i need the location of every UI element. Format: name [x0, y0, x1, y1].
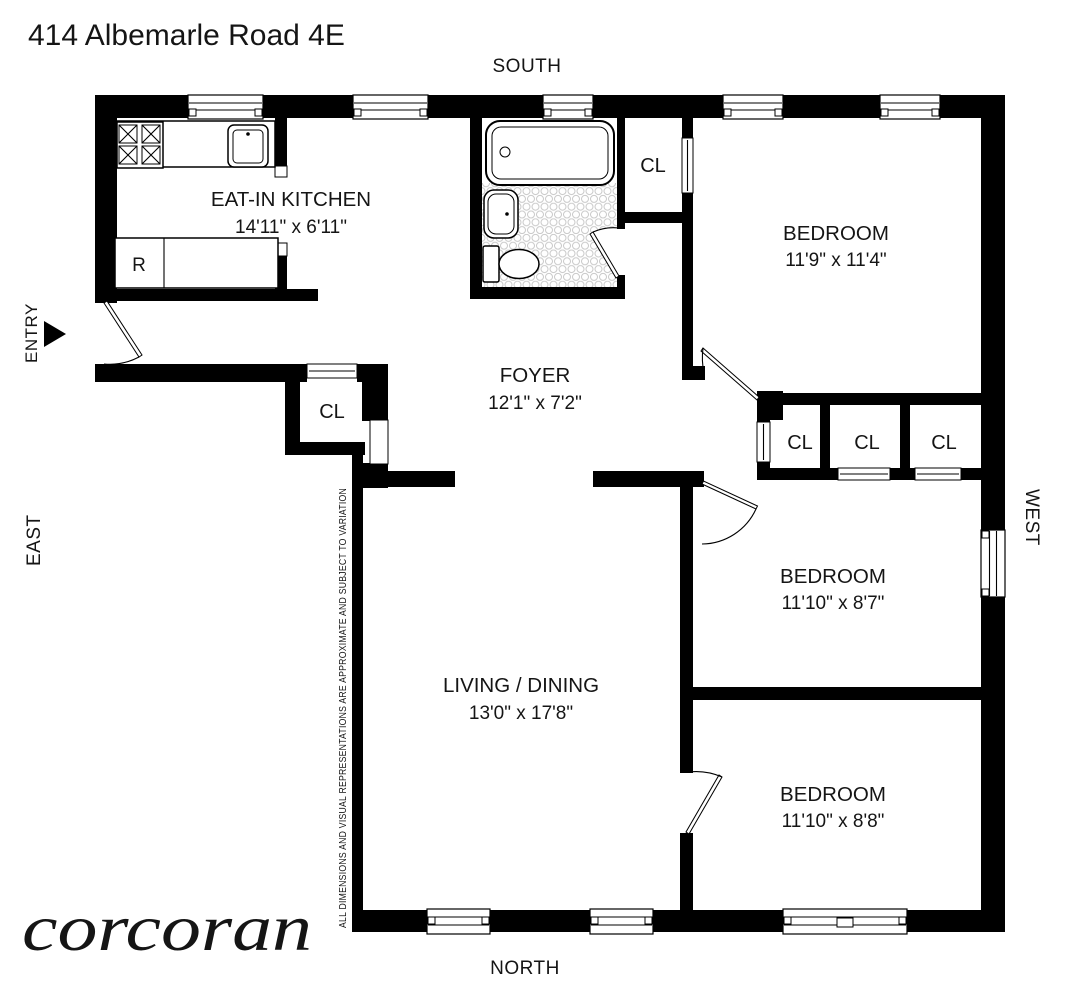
closet-label-foyer: CL [319, 401, 345, 423]
room-dims: 11'10" x 8'7" [782, 593, 885, 614]
room-name: BEDROOM [780, 783, 886, 806]
refrigerator-label: R [132, 255, 146, 276]
compass-north: NORTH [490, 958, 560, 979]
room-dims: 11'9" x 11'4" [785, 250, 886, 271]
toilet [483, 246, 539, 282]
closet-label-bedroom-south: CL [640, 155, 666, 177]
window-south-2 [353, 95, 428, 119]
floorplan-drawing: 414 Albemarle Road 4E SOUTH NORTH EAST W… [0, 0, 1066, 1000]
compass-south: SOUTH [493, 56, 562, 77]
window-south-1 [188, 95, 263, 119]
entry-label: ENTRY [22, 303, 41, 363]
window-north-bedroom [783, 909, 907, 934]
compass-east: EAST [24, 514, 45, 566]
room-dims: 13'0" x 17'8" [469, 703, 573, 724]
stove [117, 122, 163, 168]
room-dims: 14'11" x 6'11" [235, 217, 347, 238]
closet-label-3: CL [931, 432, 957, 454]
room-name: FOYER [500, 364, 571, 387]
compass-west: WEST [1021, 489, 1042, 546]
bathtub [486, 121, 614, 185]
foyer-passage-opening [370, 420, 388, 464]
room-name: LIVING / DINING [443, 674, 599, 697]
closet-label-1: CL [787, 432, 813, 454]
room-dims: 12'1" x 7'2" [488, 393, 582, 414]
page-title: 414 Albemarle Road 4E [28, 19, 345, 52]
closet-2-door [838, 468, 890, 480]
room-name: BEDROOM [780, 565, 886, 588]
window-west [981, 530, 1005, 597]
kitchen-opening-jamb-top [275, 166, 287, 177]
bathroom-sink [484, 190, 518, 238]
window-north-2 [590, 909, 653, 934]
bedroom-south-closet-door [682, 138, 693, 193]
room-dims: 11'10" x 8'8" [782, 811, 885, 832]
closet-3-door [915, 468, 961, 480]
room-name: BEDROOM [783, 222, 889, 245]
room-name: EAT-IN KITCHEN [211, 188, 371, 211]
floorplan-page: 414 Albemarle Road 4E SOUTH NORTH EAST W… [0, 0, 1066, 1000]
brand-logo: corcoran [22, 892, 312, 965]
closet-label-2: CL [854, 432, 880, 454]
foyer-closet-door [307, 364, 357, 378]
closet-1-door [757, 422, 770, 462]
kitchen-sink [228, 125, 268, 167]
window-north-1 [427, 909, 490, 934]
window-south-bedroom-1 [723, 95, 783, 119]
disclaimer-text: ALL DIMENSIONS AND VISUAL REPRESENTATION… [337, 488, 349, 928]
window-south-bathroom [543, 95, 593, 119]
window-south-bedroom-2 [880, 95, 940, 119]
